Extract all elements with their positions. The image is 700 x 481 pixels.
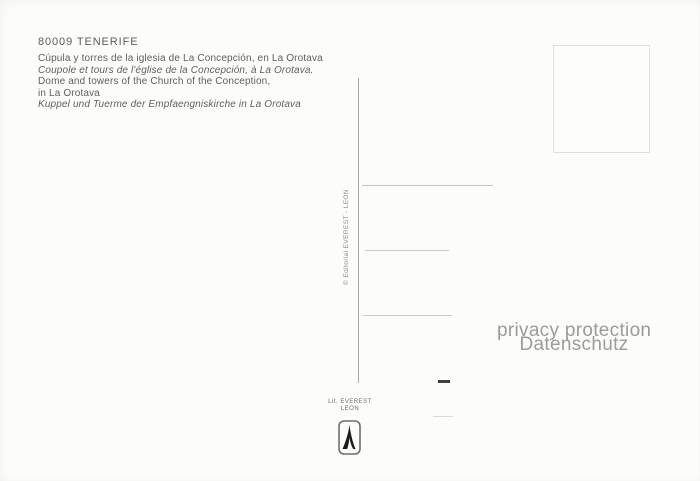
publisher-copyright-vertical: © Editorial EVEREST - LEON bbox=[342, 190, 351, 285]
caption-line-de: Kuppel und Tuerme der Empfaengniskirche … bbox=[38, 99, 338, 111]
privacy-watermark-line2: Datenschutz bbox=[497, 338, 651, 352]
stamp-box bbox=[553, 45, 650, 153]
catalog-number: 80009 TENERIFE bbox=[38, 36, 138, 48]
address-line-1 bbox=[362, 185, 493, 186]
address-line-2 bbox=[365, 250, 449, 251]
divider-line bbox=[358, 78, 359, 383]
caption-line-es: Cúpula y torres de la iglesia de La Conc… bbox=[38, 53, 338, 65]
printer-credit: Lit. EVEREST LEON bbox=[323, 399, 377, 413]
caption-block: Cúpula y torres de la iglesia de La Conc… bbox=[38, 53, 338, 111]
caption-line-en-2: in La Orotava bbox=[38, 88, 338, 100]
caption-line-en-1: Dome and towers of the Church of the Con… bbox=[38, 76, 338, 88]
everest-logo bbox=[338, 420, 361, 455]
address-line-3 bbox=[363, 315, 452, 316]
mountain-icon bbox=[338, 420, 361, 455]
postal-mark-dash-faint bbox=[433, 416, 453, 417]
postal-mark-dash bbox=[438, 380, 450, 383]
printer-credit-line2: LEON bbox=[323, 406, 377, 413]
privacy-watermark: privacy protection Datenschutz bbox=[497, 324, 651, 352]
postcard-back: 80009 TENERIFE Cúpula y torres de la igl… bbox=[0, 0, 700, 481]
printer-credit-line1: Lit. EVEREST bbox=[323, 399, 377, 406]
caption-line-fr: Coupole et tours de l'église de la Conce… bbox=[38, 65, 338, 77]
